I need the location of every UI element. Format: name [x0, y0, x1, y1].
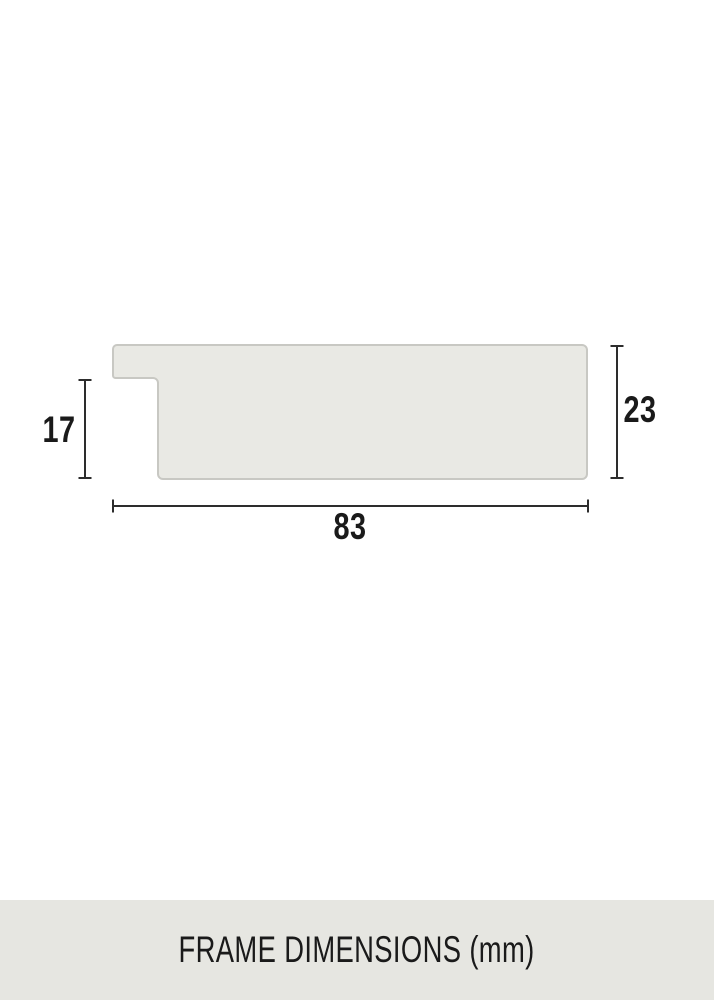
- rabbet-height-value: 17: [28, 411, 90, 449]
- technical-drawing: [0, 0, 714, 1000]
- total-width-value: 83: [319, 508, 381, 546]
- caption-text: FRAME DIMENSIONS (mm): [179, 929, 535, 971]
- frame-profile-shape: [113, 345, 587, 479]
- frame-dimensions-diagram: 17 23 83 FRAME DIMENSIONS (mm): [0, 0, 714, 1000]
- total-height-value: 23: [609, 391, 671, 429]
- caption-bar: FRAME DIMENSIONS (mm): [0, 900, 714, 1000]
